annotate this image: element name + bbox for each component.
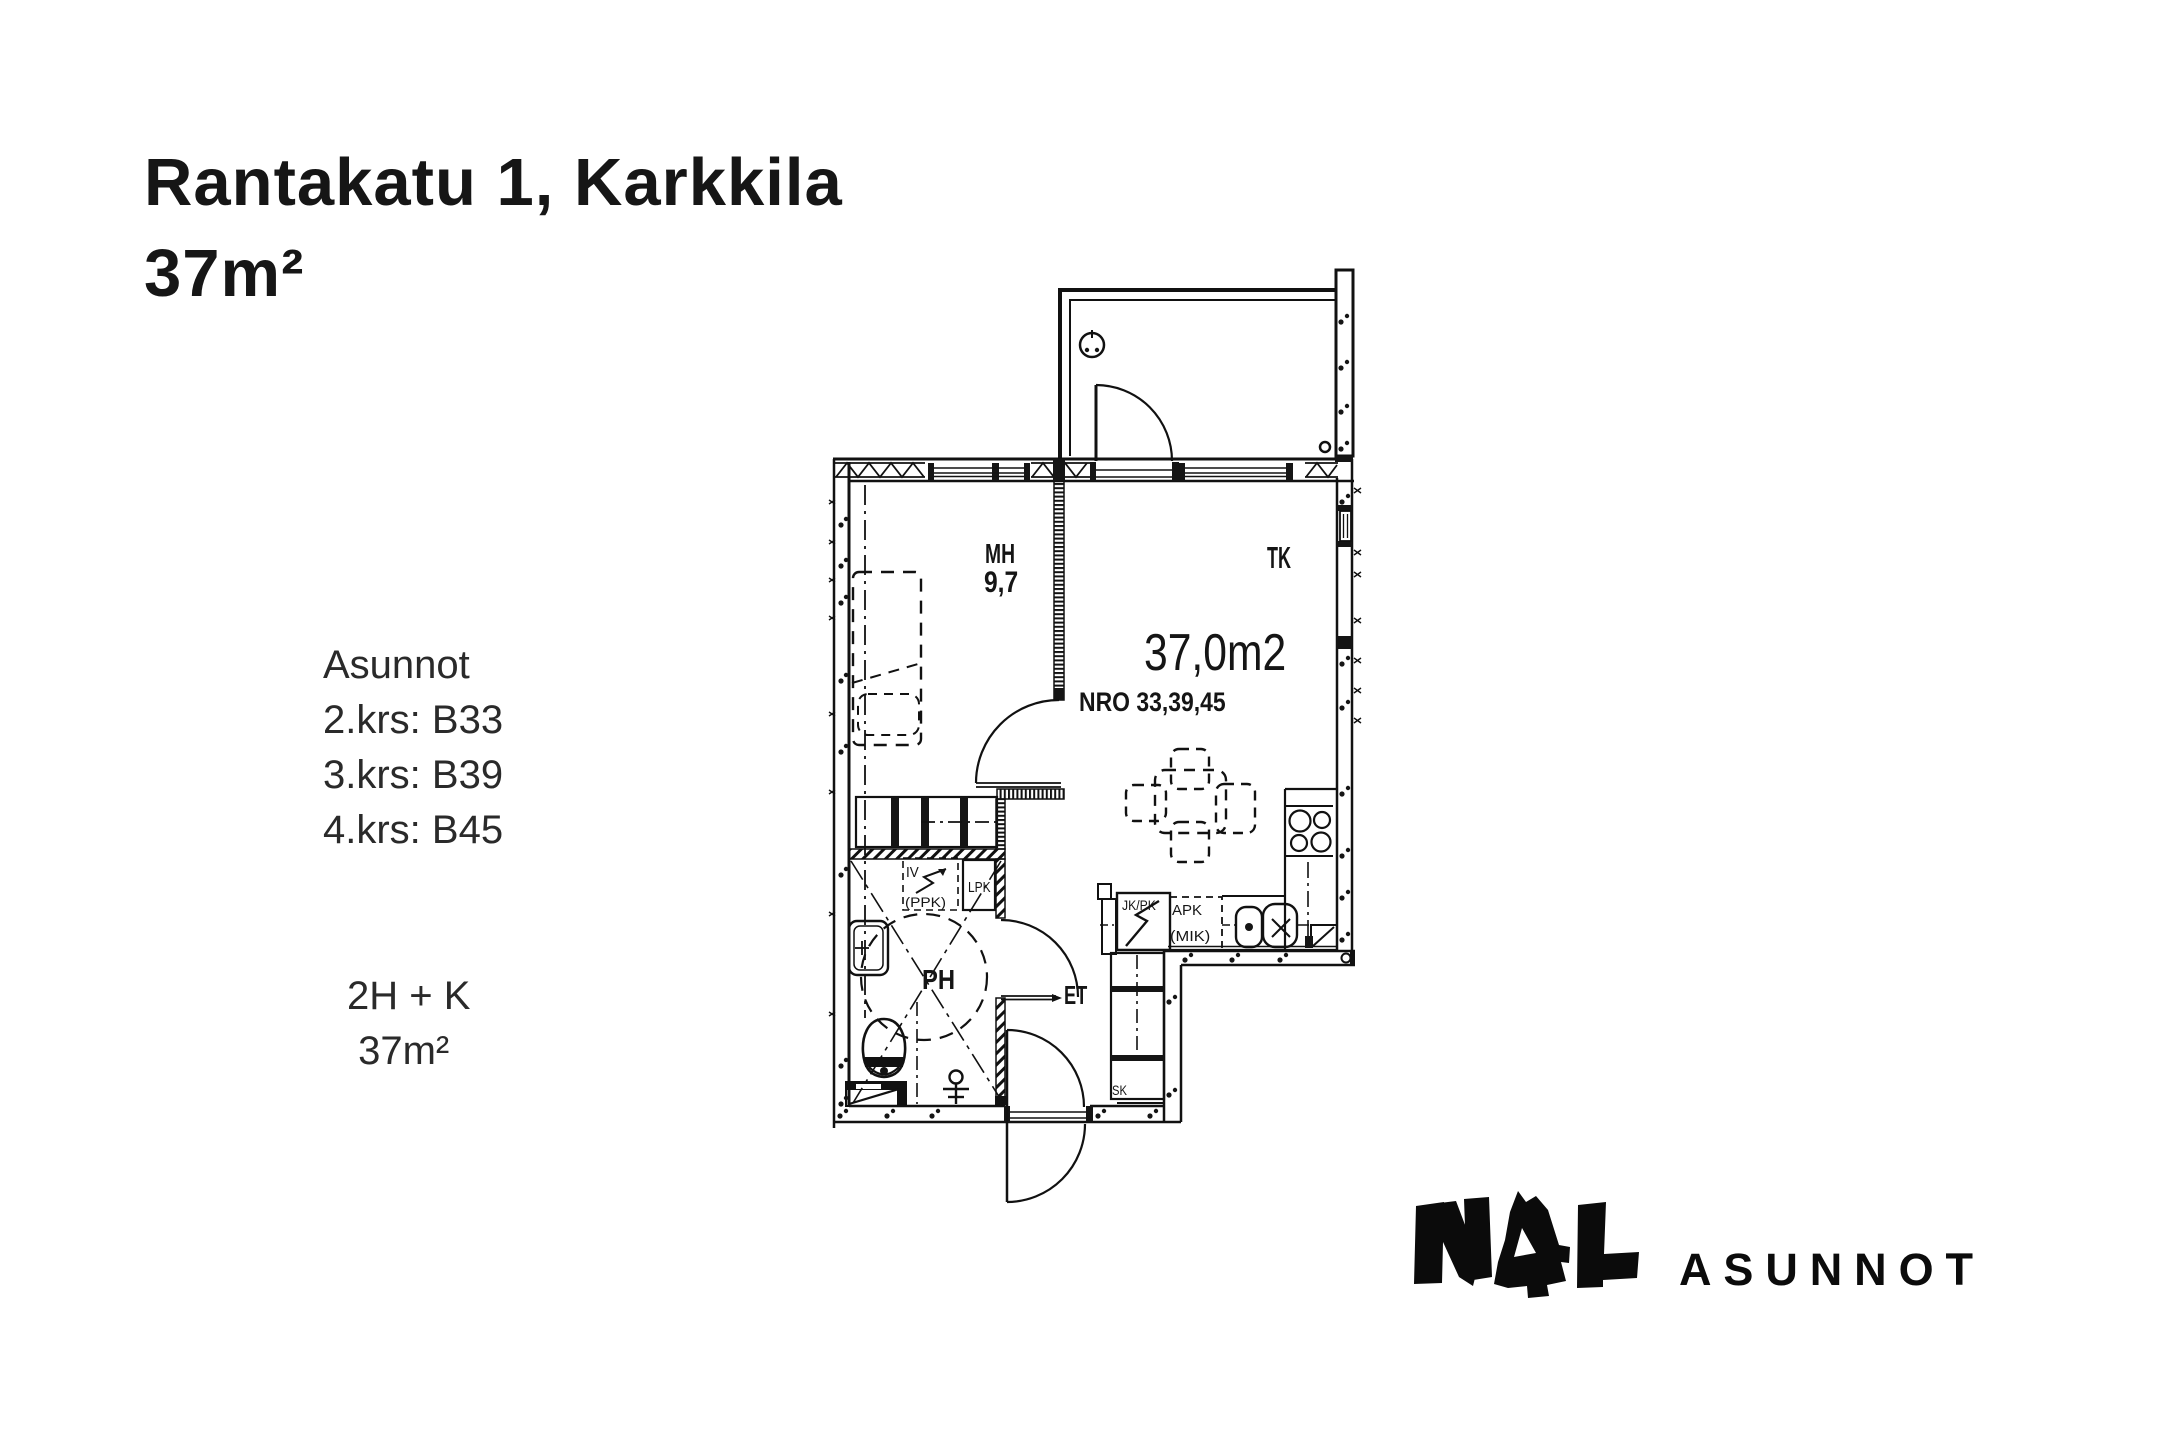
svg-text:37,0m2: 37,0m2 xyxy=(1144,624,1286,682)
svg-text:PH: PH xyxy=(922,963,955,995)
svg-text:SK: SK xyxy=(1112,1083,1127,1098)
svg-text:9,7: 9,7 xyxy=(984,565,1018,599)
svg-text:(MIK): (MIK) xyxy=(1170,929,1210,945)
svg-text:LPK: LPK xyxy=(968,879,991,896)
svg-text:NRO 33,39,45: NRO 33,39,45 xyxy=(1079,687,1226,717)
svg-text:(PPK): (PPK) xyxy=(905,896,946,911)
svg-text:TK: TK xyxy=(1267,541,1291,575)
svg-text:APK: APK xyxy=(1172,902,1202,919)
svg-text:ASUNNOT: ASUNNOT xyxy=(1679,1244,1973,1295)
svg-text:IV: IV xyxy=(906,864,919,881)
svg-text:ET: ET xyxy=(1064,981,1087,1010)
svg-text:JK/PK: JK/PK xyxy=(1122,897,1156,913)
